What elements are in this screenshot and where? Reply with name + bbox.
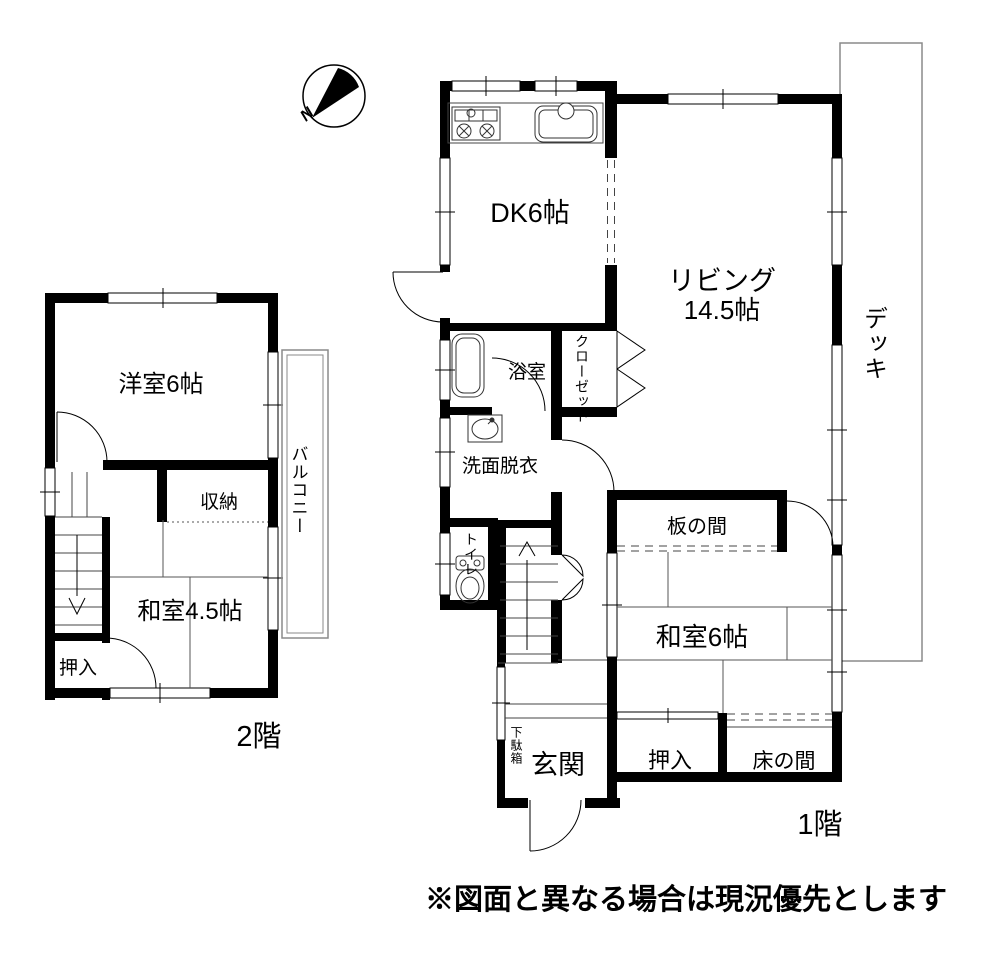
label-floor1: 1階 (797, 809, 842, 841)
label-washitsu45: 和室4.5帖 (137, 598, 242, 625)
stairs-1f (498, 542, 558, 663)
windows-1f (435, 76, 847, 740)
label-toilet: トイレ (463, 532, 479, 577)
label-oshiire-2f: 押入 (59, 657, 97, 679)
label-oshiire-1f: 押入 (648, 748, 692, 773)
stairs-2f (55, 472, 102, 625)
label-balcony: バルコニー (289, 445, 308, 535)
label-shuunou: 収納 (200, 491, 238, 513)
label-tokonoma: 床の間 (753, 750, 816, 773)
label-living-1: リビング (668, 266, 776, 296)
label-deck: デッキ (860, 306, 887, 381)
north-arrow-icon: N (297, 65, 365, 127)
label-living-2: 14.5帖 (684, 295, 761, 325)
floorplan-drawing: N (0, 0, 982, 960)
floorplan-canvas: N (0, 0, 982, 960)
caption-note: ※図面と異なる場合は現況優先とします (425, 883, 947, 916)
label-getabako: 下駄箱 (509, 726, 523, 765)
washbasin (468, 415, 502, 442)
label-dk: DK6帖 (490, 198, 570, 228)
kitchen-sink (535, 103, 597, 142)
label-floor2: 2階 (236, 721, 281, 753)
label-youshitsu: 洋室6帖 (118, 371, 203, 398)
label-itanoma: 板の間 (667, 515, 727, 538)
label-genkan: 玄関 (531, 750, 585, 780)
walls-2f (45, 293, 278, 700)
label-washroom: 洗面脱衣 (462, 455, 538, 477)
bathtub (452, 334, 484, 397)
label-washitsu6: 和室6帖 (656, 622, 748, 652)
kitchen-stove (452, 107, 500, 140)
label-bath: 浴室 (508, 361, 546, 383)
label-closet: クローゼット (574, 334, 590, 424)
